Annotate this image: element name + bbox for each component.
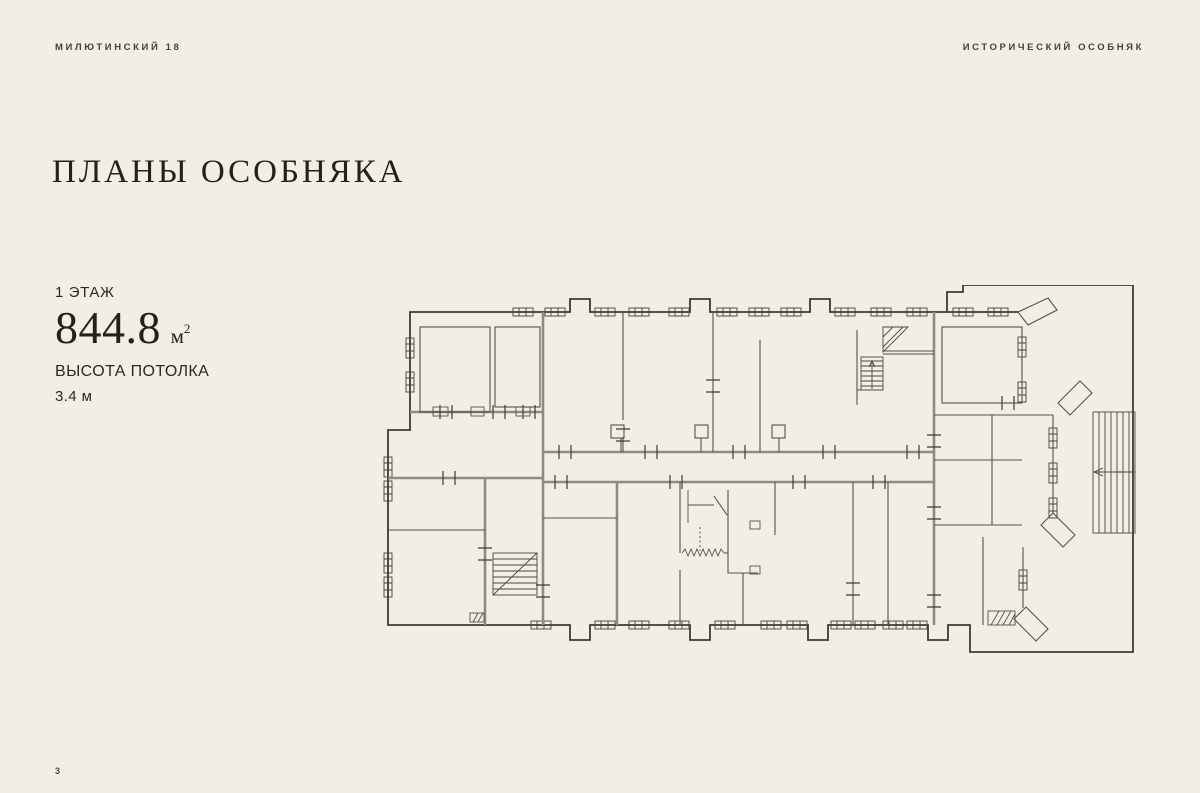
header-subtitle: ИСТОРИЧЕСКИЙ ОСОБНЯК (963, 42, 1144, 53)
area-exponent: 2 (184, 321, 191, 336)
ceiling-height-label: ВЫСОТА ПОТОЛКА (55, 363, 295, 381)
floor-area: 844.8 м2 (55, 305, 295, 351)
header-address: МИЛЮТИНСКИЙ 18 (55, 42, 181, 53)
area-unit: м2 (165, 324, 190, 348)
floor-plan-drawing (383, 285, 1143, 665)
page-title: ПЛАНЫ ОСОБНЯКА (52, 154, 406, 191)
plan-stairs (493, 327, 1135, 595)
ceiling-height-value: 3.4 м (55, 388, 295, 405)
area-value: 844.8 (55, 302, 161, 353)
plan-bearing-walls (388, 312, 934, 625)
floor-label: 1 ЭТАЖ (55, 284, 295, 301)
plan-details (433, 407, 1015, 625)
floor-plan (383, 285, 1143, 665)
floor-info-block: 1 ЭТАЖ 844.8 м2 ВЫСОТА ПОТОЛКА 3.4 м (55, 284, 295, 405)
page-number: 3 (55, 766, 60, 776)
plan-partition-walls (388, 312, 1053, 625)
brochure-page: { "page": { "background": "#f2eee5", "te… (0, 0, 1200, 793)
plan-doors (440, 380, 1014, 607)
